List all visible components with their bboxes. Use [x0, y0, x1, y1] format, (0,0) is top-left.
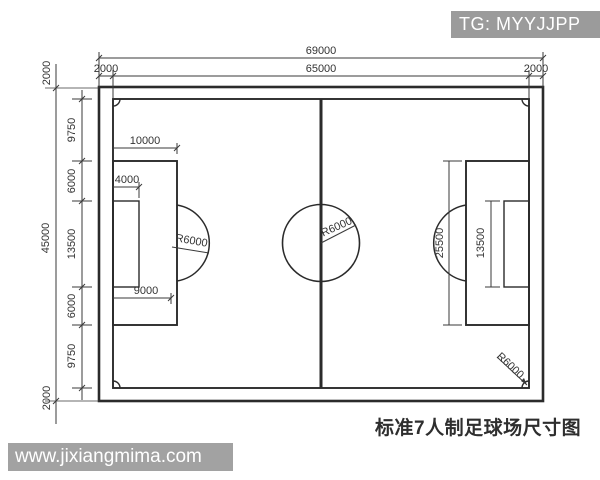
corner-arc-top-right	[522, 99, 529, 106]
dim-margin-top-right: 2000	[524, 63, 548, 75]
dim-seg-6000-top: 6000	[66, 169, 78, 193]
dim-seg-6000-bottom: 6000	[66, 294, 78, 318]
dim-penalty-arc-radius: R6000	[175, 232, 209, 249]
dim-seg-13500: 13500	[66, 229, 78, 260]
dim-corner-arc-radius: R6000	[494, 350, 526, 381]
dim-goal-depth: 4000	[115, 174, 139, 186]
dim-overall-width: 69000	[306, 45, 337, 57]
corner-arc-top-left	[113, 99, 120, 106]
dim-overall-height: 45000	[40, 223, 52, 254]
website-watermark-label: www.jixiangmima.com	[15, 446, 202, 467]
dim-center-circle-radius: R6000	[320, 215, 354, 239]
dim-penalty-area-width: 25500	[434, 228, 446, 259]
screenshot-root: 69000 65000 2000 2000 2000 45000 2000 97…	[0, 0, 600, 480]
right-goal-area	[504, 201, 529, 287]
dim-margin-top-left: 2000	[94, 63, 118, 75]
corner-arc-bottom-left	[113, 381, 120, 388]
dim-seg-9750-top: 9750	[66, 118, 78, 142]
dim-penalty-depth: 10000	[130, 135, 161, 147]
drawing-caption: 标准7人制足球场尺寸图	[375, 413, 570, 439]
dim-seg-9750-bottom: 9750	[66, 344, 78, 368]
dim-goal-area-width: 13500	[475, 228, 487, 259]
dim-margin-side-top: 2000	[41, 61, 53, 85]
telegram-watermark-badge: TG: MYYJJPP	[451, 11, 600, 38]
website-watermark-badge: www.jixiangmima.com	[8, 443, 233, 471]
dim-pitch-width: 65000	[306, 63, 337, 75]
pitch-dimension-drawing: 69000 65000 2000 2000 2000 45000 2000 97…	[0, 0, 600, 480]
telegram-watermark-label: TG: MYYJJPP	[459, 14, 581, 34]
dim-margin-side-bottom: 2000	[41, 386, 53, 410]
dimension-lines	[45, 52, 546, 424]
left-goal-area	[113, 201, 139, 287]
dim-penalty-mark: 9000	[134, 285, 158, 297]
